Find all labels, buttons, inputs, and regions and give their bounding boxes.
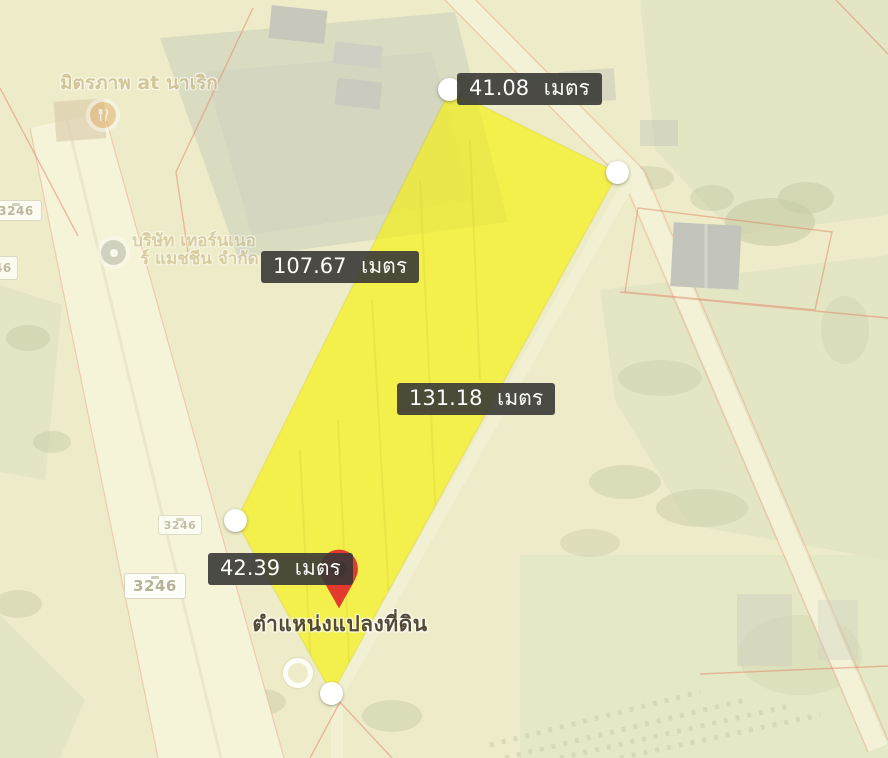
road-shield-3246-bottom: 3246 — [124, 573, 186, 599]
shield-emblem — [12, 203, 20, 206]
road-shield-3246-top: 3246 — [0, 200, 42, 221]
shield-emblem — [176, 518, 184, 521]
measurement-label-bottom: 42.39 เมตร — [208, 553, 353, 585]
measurement-label-top: 41.08 เมตร — [457, 73, 602, 105]
restaurant-icon — [90, 102, 116, 128]
shield-number: 3246 — [0, 261, 12, 275]
map-base-layer — [0, 0, 888, 758]
shield-emblem — [151, 576, 159, 579]
poi-company-label-line1: บริษัท เทอร์นเนอ — [132, 232, 259, 250]
pin-caption: ตำแหน่งแปลงที่ดิน — [248, 608, 432, 641]
measurement-label-right: 131.18 เมตร — [397, 383, 555, 415]
road-shield-3246-left-partial: 3246 — [0, 256, 18, 280]
poi-company-label-line2: ร์ แมชชีน จำกัด — [140, 250, 259, 268]
vertex-handle-bottom[interactable] — [320, 682, 343, 705]
company-poi[interactable] — [97, 236, 130, 269]
measurement-label-left: 107.67 เมตร — [261, 251, 419, 283]
place-circle-marker — [283, 658, 313, 688]
map-canvas[interactable]: 41.08 เมตร 107.67 เมตร 131.18 เมตร 42.39… — [0, 0, 888, 758]
poi-company-label: บริษัท เทอร์นเนอ ร์ แมชชีน จำกัด — [132, 232, 259, 268]
vertex-handle-right[interactable] — [606, 161, 629, 184]
vertex-handle-left[interactable] — [224, 509, 247, 532]
poi-restaurant-label: มิตรภาพ at นาเริก — [60, 68, 218, 98]
factory-icon — [101, 240, 126, 265]
restaurant-poi[interactable] — [86, 98, 120, 132]
road-shield-3246-mid: 3246 — [158, 515, 202, 535]
shield-number: 3246 — [133, 577, 177, 595]
